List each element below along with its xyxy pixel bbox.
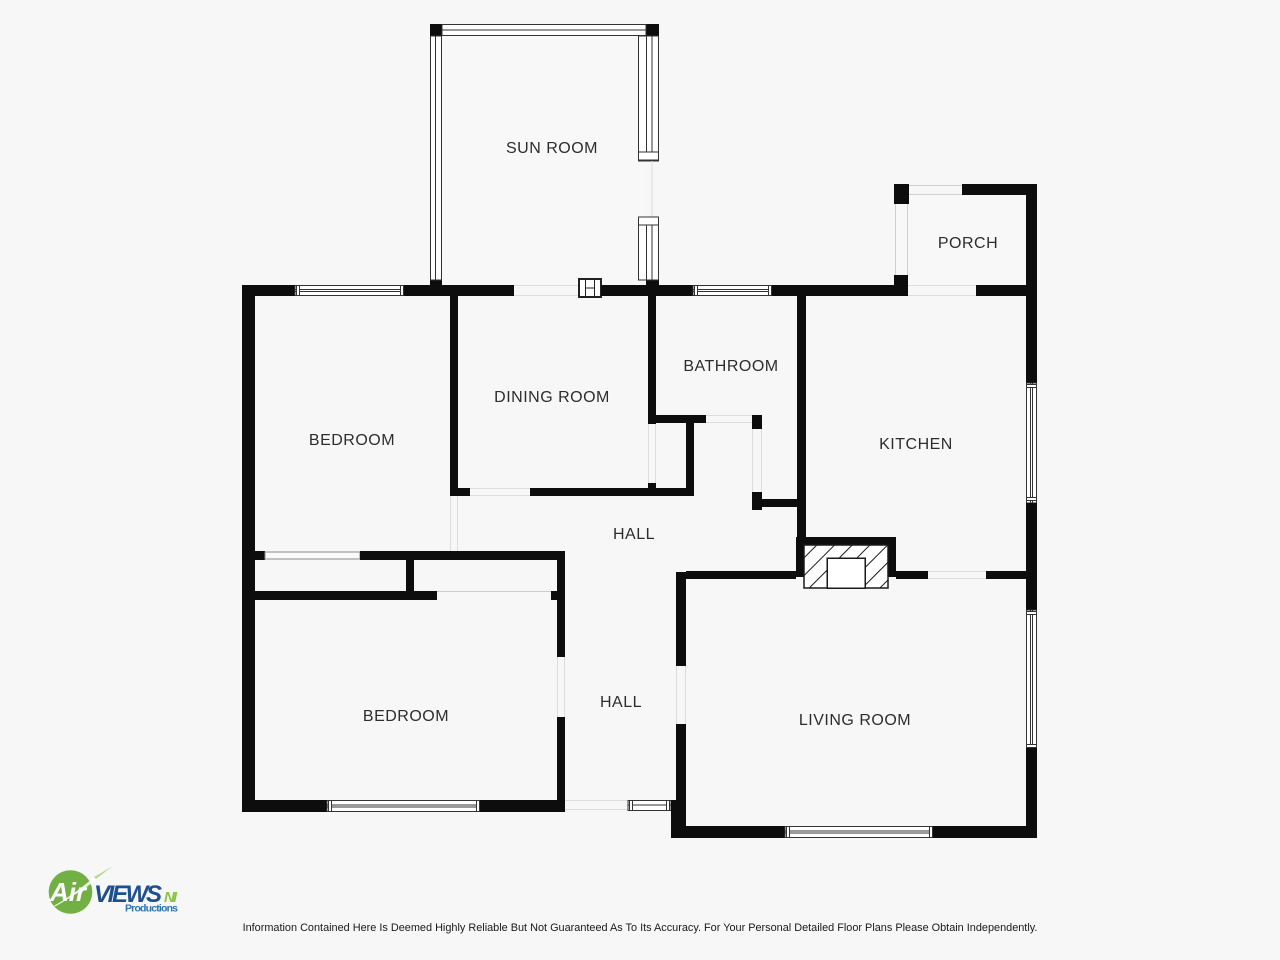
svg-text:Air: Air	[49, 877, 88, 907]
svg-text:Information Contained Here Is: Information Contained Here Is Deemed Hig…	[243, 922, 1038, 934]
svg-text:BATHROOM: BATHROOM	[683, 358, 778, 375]
svg-text:KITCHEN: KITCHEN	[879, 436, 953, 453]
svg-text:DINING ROOM: DINING ROOM	[494, 389, 610, 406]
svg-text:HALL: HALL	[613, 526, 655, 543]
svg-text:BEDROOM: BEDROOM	[309, 432, 395, 449]
svg-text:LIVING ROOM: LIVING ROOM	[799, 712, 911, 729]
svg-text:SUN ROOM: SUN ROOM	[506, 140, 598, 157]
svg-text:PORCH: PORCH	[938, 235, 998, 252]
svg-text:HALL: HALL	[600, 694, 642, 711]
svg-text:BEDROOM: BEDROOM	[363, 708, 449, 725]
svg-text:Productions: Productions	[125, 903, 178, 915]
